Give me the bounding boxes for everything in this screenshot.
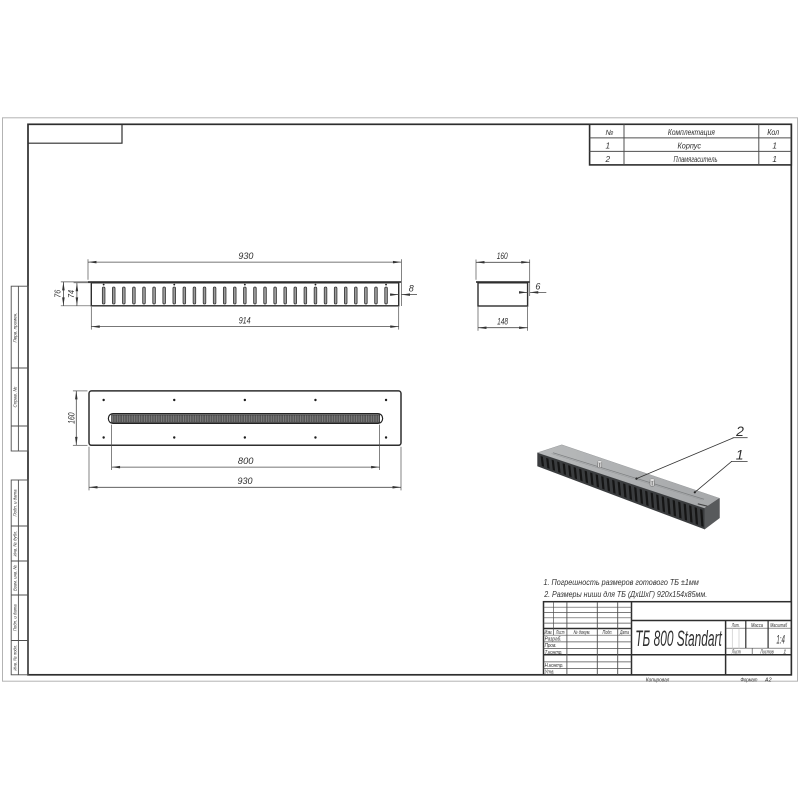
svg-text:2. Размеры ниши для ТБ (ДхШхГ): 2. Размеры ниши для ТБ (ДхШхГ) 920х154х8… [543,589,707,599]
svg-text:800: 800 [238,456,254,466]
svg-text:Разраб.: Разраб. [545,637,562,643]
svg-text:Т.контр.: Т.контр. [545,650,563,656]
svg-text:1:4: 1:4 [776,635,785,647]
svg-text:ТБ 800 Standart: ТБ 800 Standart [635,626,722,651]
svg-text:6: 6 [535,282,540,292]
svg-text:1: 1 [736,447,744,463]
svg-text:№ докум.: № докум. [574,630,591,636]
svg-text:930: 930 [238,251,253,261]
svg-text:Кол: Кол [767,128,779,137]
svg-text:914: 914 [239,316,251,326]
svg-text:Лист: Лист [731,650,741,656]
svg-text:930: 930 [238,476,253,486]
svg-text:Утв.: Утв. [544,670,555,676]
svg-text:Масштаб: Масштаб [770,623,788,629]
svg-text:160: 160 [67,412,77,424]
svg-text:8: 8 [409,284,414,294]
svg-text:А2: А2 [764,678,772,684]
svg-text:Листов: Листов [760,650,774,656]
svg-text:Инв. № дубл.: Инв. № дубл. [13,531,19,557]
svg-text:Пров.: Пров. [545,643,557,649]
svg-text:Н.контр.: Н.контр. [545,663,564,669]
svg-text:Комплектация: Комплектация [668,128,715,137]
svg-text:Подп.: Подп. [603,630,613,636]
svg-text:2: 2 [735,423,744,439]
svg-text:1: 1 [783,650,786,656]
svg-text:76: 76 [54,289,63,298]
svg-text:Пламягаситель: Пламягаситель [674,155,718,164]
svg-text:Лист: Лист [555,630,564,636]
svg-text:Формат: Формат [741,678,758,684]
svg-text:Масса: Масса [751,623,763,629]
svg-text:160: 160 [497,251,508,261]
svg-text:1: 1 [772,141,777,150]
svg-text:Дата: Дата [619,630,629,636]
svg-text:Взам. инв. №: Взам. инв. № [13,565,19,591]
svg-text:74: 74 [67,289,76,298]
svg-text:Инв. № подл.: Инв. № подл. [13,645,19,671]
svg-text:Перв. примен.: Перв. примен. [13,313,19,343]
svg-text:2: 2 [605,155,611,164]
svg-text:№: № [605,128,613,137]
svg-text:1. Погрешность размеров готово: 1. Погрешность размеров готового ТБ ±1мм [544,577,699,587]
svg-text:Подп. и дата: Подп. и дата [13,604,19,631]
svg-text:1: 1 [606,141,611,150]
svg-text:Лит.: Лит. [731,623,740,629]
svg-text:Подп. и дата: Подп. и дата [13,489,19,516]
svg-text:Копировал: Копировал [646,678,670,684]
svg-text:1: 1 [772,155,777,164]
svg-text:148: 148 [497,317,508,327]
svg-text:Корпус: Корпус [678,141,702,150]
svg-text:Изм.: Изм. [545,630,553,636]
svg-text:Справ. №: Справ. № [13,387,19,408]
